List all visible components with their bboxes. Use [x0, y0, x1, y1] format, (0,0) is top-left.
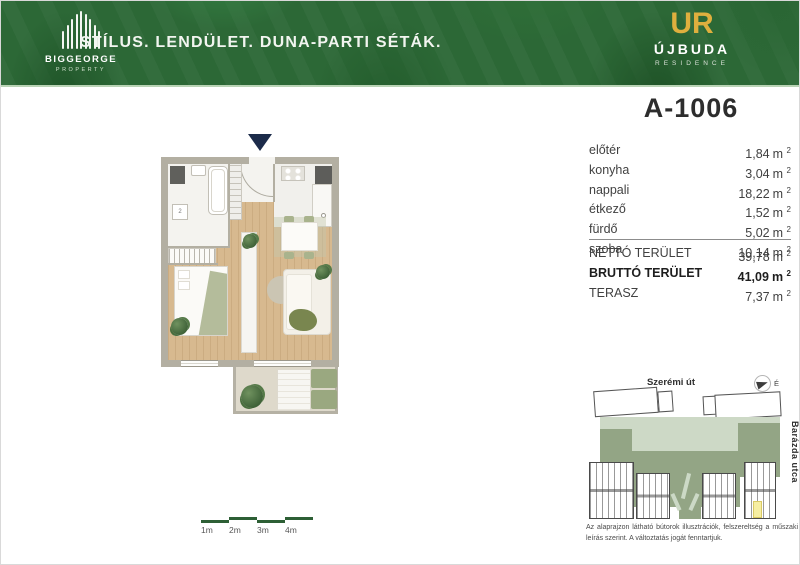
scale-segment	[229, 517, 257, 520]
scale-label: 4m	[285, 525, 313, 535]
scale-label: 2m	[229, 525, 257, 535]
dining-table	[281, 222, 318, 251]
pillow	[178, 270, 190, 279]
scale-labels: 1m 2m 3m 4m	[201, 525, 313, 535]
interior-wall	[273, 164, 275, 202]
total-label: BRUTTÓ TERÜLET	[589, 266, 702, 286]
stove	[281, 166, 305, 181]
plant	[171, 318, 188, 335]
header-divider	[1, 85, 800, 87]
room-label: étkező	[589, 202, 626, 222]
building-wing	[589, 462, 634, 519]
street-label-right: Barázda utca	[790, 421, 800, 483]
dining-chair	[304, 252, 314, 259]
floor-plan: 2	[161, 134, 341, 419]
terrace-lounger	[277, 369, 311, 411]
table-row: nappali18,22m 2	[589, 183, 791, 203]
room-label: konyha	[589, 163, 629, 183]
bath-cabinet: 2	[172, 204, 188, 220]
ur-monogram: UR	[637, 8, 747, 40]
site-plan: Szerémi út É Barázda utca	[586, 373, 798, 523]
total-area: 7,37m 2	[745, 286, 791, 306]
north-arrow-icon	[754, 375, 771, 392]
logo-title: ÚJBUDA	[637, 41, 747, 57]
dining-chair	[284, 252, 294, 259]
table-row: NETTÓ TERÜLET39,78m 2	[589, 246, 791, 266]
room-area: 1,84m 2	[745, 143, 791, 163]
campaign-headline: STÍLUS. LENDÜLET. DUNA-PARTI SÉTÁK.	[80, 34, 442, 52]
neighbor-building	[714, 391, 781, 419]
interior-wall	[168, 263, 218, 265]
disclaimer-text: Az alaprajzon látható bútorok illusztrác…	[586, 523, 798, 544]
totals-divider	[589, 239, 791, 240]
table-row: konyha3,04m 2	[589, 163, 791, 183]
apartment-walls: 2	[161, 157, 339, 367]
total-area: 39,78m 2	[738, 246, 791, 266]
room-area: 1,52m 2	[745, 202, 791, 222]
building-wing	[702, 473, 736, 519]
flyer-page: BIGGEORGE PROPERTY STÍLUS. LENDÜLET. DUN…	[0, 0, 800, 565]
toilet	[191, 165, 206, 176]
scale-label: 3m	[257, 525, 285, 535]
entry-door-opening	[249, 157, 275, 164]
apartment-id: A-1006	[586, 93, 796, 124]
terrace-sofa	[311, 390, 337, 409]
terrace-door	[254, 360, 311, 367]
scale-segment	[285, 517, 313, 520]
bathtub	[208, 166, 228, 215]
room-area-table: előtér1,84m 2 konyha3,04m 2 nappali18,22…	[589, 143, 791, 262]
table-row: előtér1,84m 2	[589, 143, 791, 163]
terrace	[233, 367, 338, 414]
room-area: 18,22m 2	[738, 183, 791, 203]
total-area: 41,09m 2	[738, 266, 791, 286]
entrance-arrow-icon	[248, 134, 272, 151]
window	[181, 360, 218, 367]
brand-name: BIGGEORGE	[17, 54, 145, 65]
partition-wall	[241, 232, 257, 353]
wardrobe	[168, 248, 216, 264]
ujbuda-residence-logo: UR ÚJBUDA RESIDENCE	[637, 8, 747, 67]
header-banner: BIGGEORGE PROPERTY STÍLUS. LENDÜLET. DUN…	[1, 1, 800, 85]
room-label: előtér	[589, 143, 620, 163]
scale-segment	[201, 520, 229, 523]
sofa-plant-throw	[289, 309, 317, 331]
table-row: étkező1,52m 2	[589, 202, 791, 222]
room-area: 3,04m 2	[745, 163, 791, 183]
terrace-plant	[241, 385, 263, 408]
street-label-top: Szerémi út	[626, 377, 716, 388]
fridge	[315, 166, 332, 184]
pillow	[178, 281, 190, 290]
neighbor-building	[593, 387, 659, 417]
total-label: TERASZ	[589, 286, 638, 306]
north-label: É	[774, 379, 779, 388]
scale-label: 1m	[201, 525, 229, 535]
hall-closet	[230, 164, 242, 220]
brand-subtitle: PROPERTY	[17, 67, 145, 73]
washing-machine	[170, 166, 185, 184]
table-row: BRUTTÓ TERÜLET41,09m 2	[589, 266, 791, 286]
room-label: nappali	[589, 183, 629, 203]
terrace-sofa	[311, 369, 337, 388]
bed-blanket	[196, 271, 228, 336]
logo-subtitle: RESIDENCE	[637, 60, 747, 67]
scale-segment	[257, 520, 285, 523]
building-wing	[636, 473, 670, 519]
neighbor-building	[657, 391, 673, 413]
plant	[243, 234, 257, 248]
totals-table: NETTÓ TERÜLET39,78m 2 BRUTTÓ TERÜLET41,0…	[589, 246, 791, 306]
total-label: NETTÓ TERÜLET	[589, 246, 692, 266]
plant	[316, 265, 330, 279]
table-row: TERASZ7,37m 2	[589, 286, 791, 306]
apartment-location-highlight	[753, 501, 762, 518]
